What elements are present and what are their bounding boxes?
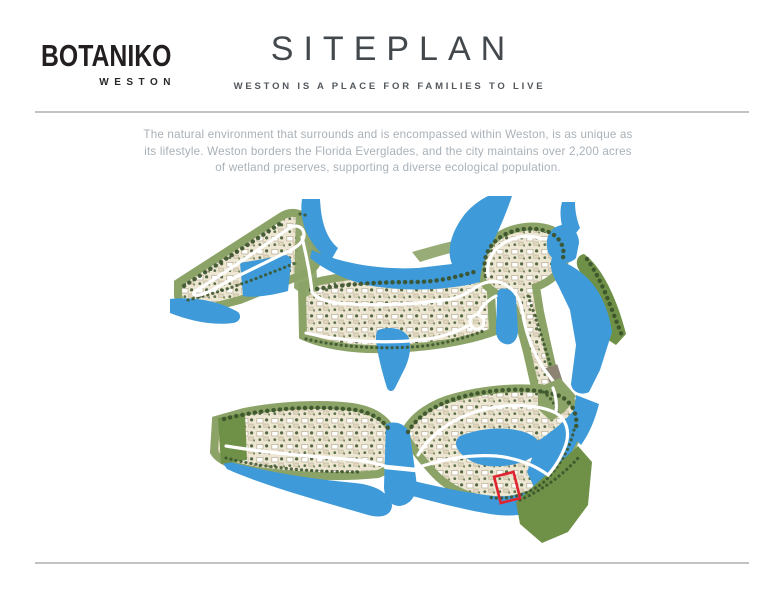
siteplan-map-svg xyxy=(0,0,776,600)
siteplan-page: BOTANIKO WESTON SITEPLAN WESTON IS A PLA… xyxy=(0,0,776,600)
lower-neighborhood xyxy=(214,378,599,543)
siteplan-map xyxy=(0,0,776,600)
footer-divider xyxy=(35,562,749,564)
park-parcel xyxy=(218,413,247,464)
upper-neighborhood xyxy=(170,196,626,394)
